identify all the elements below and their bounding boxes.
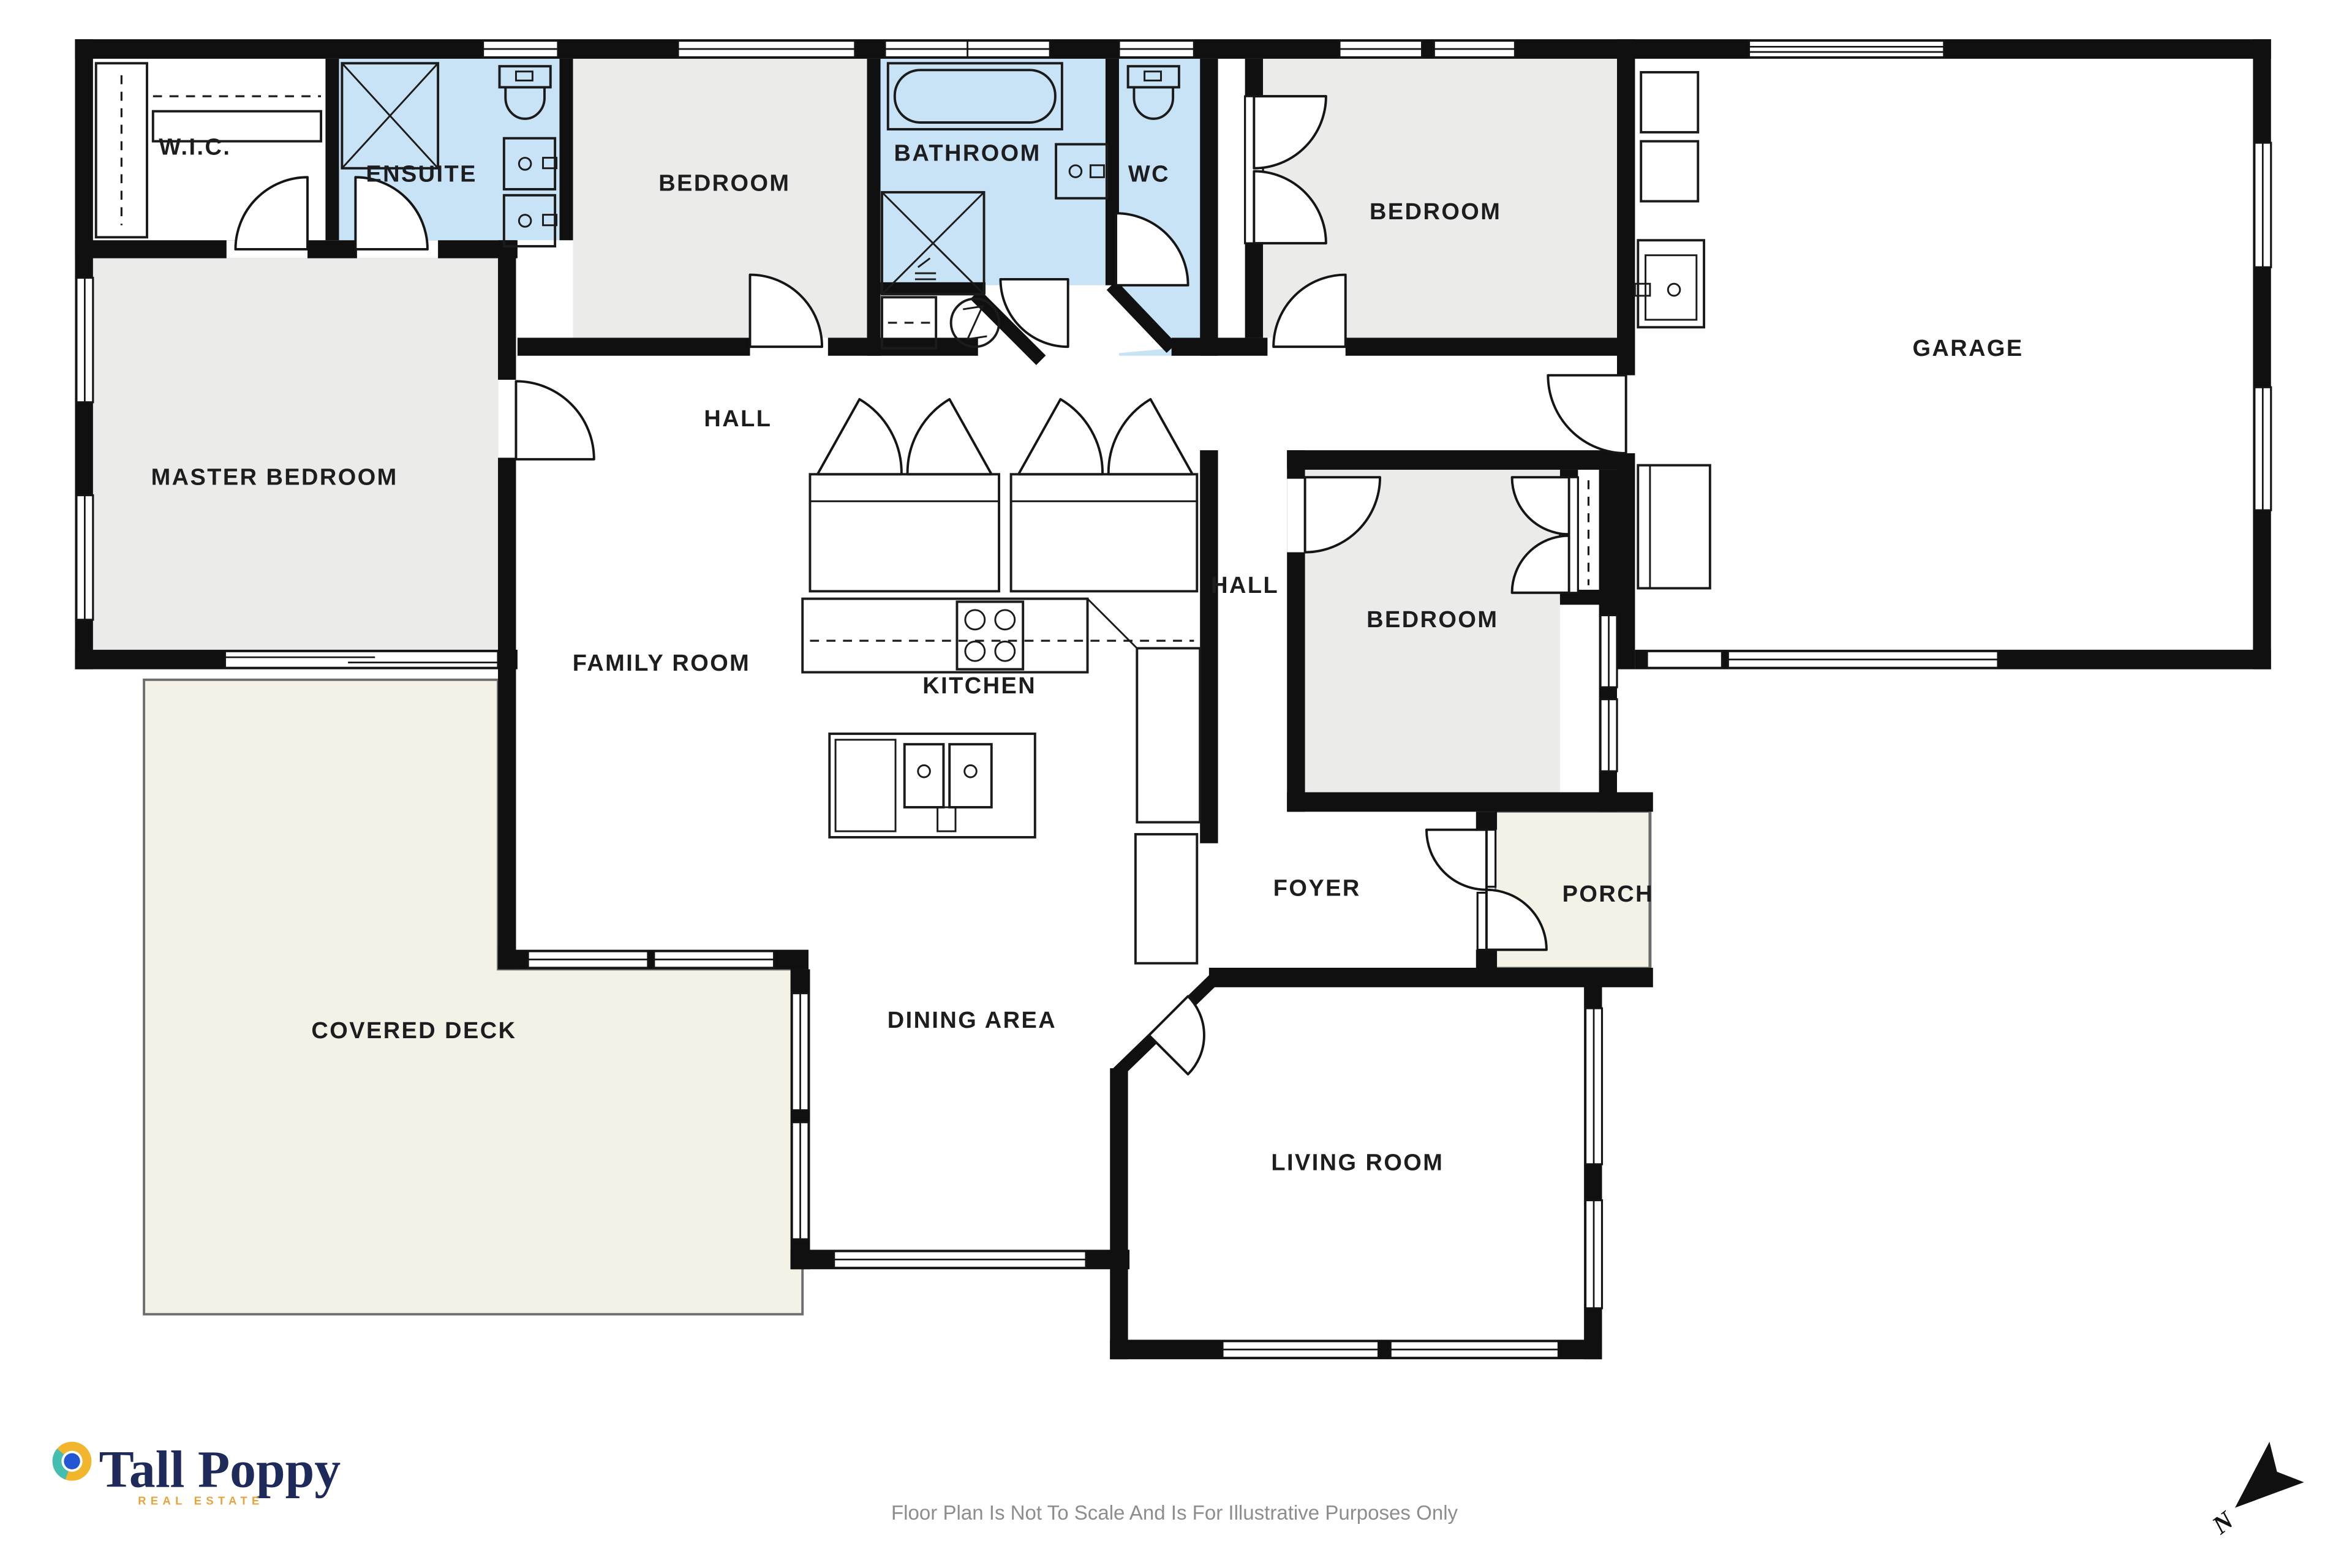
label-hall-east: HALL [1211, 573, 1279, 598]
laundry-sink [1635, 240, 1704, 327]
logo-name: Tall Poppy [99, 1440, 341, 1498]
opening-master [498, 380, 516, 458]
wall-hall-north-4 [1346, 337, 1617, 355]
floor-plan-page: W.I.C. ENSUITE BEDROOM BATHROOM WC BEDRO… [0, 0, 2352, 1568]
label-wic: W.I.C. [159, 135, 231, 160]
slider-family-deck-2 [654, 951, 774, 968]
garage-bench [1638, 466, 1710, 589]
wall-nook-top [881, 282, 986, 295]
slider-master-deck [225, 651, 498, 668]
covered-deck-floor [144, 680, 802, 1314]
label-bedroom-top: BEDROOM [658, 170, 790, 196]
label-porch: PORCH [1562, 881, 1654, 907]
window-wc [1119, 41, 1194, 58]
window-living-south-2 [1390, 1341, 1558, 1358]
wall-bedroom-bathroom [867, 59, 881, 356]
wall-garage-west-upper [1617, 39, 1635, 375]
door-garage-entry [1548, 375, 1626, 453]
window-ensuite [483, 41, 558, 58]
garage-door [1749, 41, 1944, 58]
logo-center-dot [64, 1453, 80, 1469]
label-wc: WC [1128, 162, 1170, 187]
logo-tagline: REAL ESTATE [138, 1494, 263, 1507]
window-bathroom [885, 41, 1050, 58]
label-bedroom-middle: BEDROOM [1366, 607, 1498, 633]
wall-garage-west-lower [1617, 453, 1635, 669]
slider-dining-deck-1 [792, 993, 809, 1110]
wall-living-west [1110, 1068, 1128, 1359]
wall-frontdoor-stub-bottom [1476, 950, 1497, 968]
north-arrow-icon [2235, 1442, 2304, 1508]
north-arrow: N [2207, 1442, 2304, 1540]
slider-dining-deck-2 [792, 1122, 809, 1239]
bedroom-top-floor [573, 59, 867, 338]
label-bathroom: BATHROOM [894, 140, 1041, 166]
island-tap [938, 807, 956, 831]
wall-bedroom-middle-south [1287, 792, 1653, 812]
north-label: N [2207, 1506, 2240, 1540]
label-living-room: LIVING ROOM [1271, 1150, 1444, 1176]
logo: Tall Poppy REAL ESTATE [53, 1440, 341, 1507]
label-hall-north: HALL [704, 406, 772, 432]
slider-family-deck-1 [528, 951, 648, 968]
wall-ensuite-bedroom [559, 59, 573, 240]
front-door-swing-foyer [1427, 830, 1487, 890]
wall-hall-north-3 [1172, 337, 1268, 355]
window-living-south-1 [1223, 1341, 1379, 1358]
washer [1641, 72, 1698, 132]
window-master-1 [77, 277, 93, 402]
label-covered-deck: COVERED DECK [311, 1018, 516, 1044]
closet-door-2b [1109, 399, 1193, 474]
kitchen-island [829, 734, 1035, 837]
wall-hall-north-1 [518, 337, 750, 355]
label-bedroom-right: BEDROOM [1370, 199, 1501, 225]
wall-wc-east [1200, 59, 1218, 356]
wall-frontdoor-stub-top [1476, 812, 1497, 829]
label-ensuite: ENSUITE [366, 162, 477, 187]
wall-bedroom-middle-north [1287, 450, 1617, 470]
wall-garage-east [2253, 39, 2271, 669]
window-garage-east-2 [2255, 387, 2271, 510]
window-dining-south [834, 1251, 1086, 1268]
window-bedroom-right-1 [1340, 41, 1422, 58]
wall-hall-north-2 [828, 337, 978, 355]
kitchen-counter [802, 599, 1200, 823]
hall-closet-2 [1011, 474, 1197, 591]
label-master-bedroom: MASTER BEDROOM [151, 464, 398, 490]
hall-closet-1 [810, 474, 999, 591]
window-bedroom-right-2 [1434, 41, 1515, 58]
window-bedroom-top [678, 41, 855, 58]
window-living-east-2 [1586, 1200, 1602, 1308]
cooktop [957, 601, 1023, 669]
closet-door-2a [1019, 399, 1102, 474]
dryer [1641, 141, 1698, 202]
window-master-2 [77, 496, 93, 620]
wall-wic-ensuite [325, 59, 339, 240]
bathroom-floor [881, 59, 1106, 285]
label-family-room: FAMILY ROOM [573, 650, 750, 676]
door-living-room [1149, 997, 1204, 1074]
door-wic [235, 177, 307, 249]
label-foyer: FOYER [1273, 875, 1361, 901]
window-living-east-1 [1586, 1008, 1602, 1164]
closet-door-1a [818, 399, 902, 474]
master-bedroom-floor [93, 258, 498, 650]
label-dining-area: DINING AREA [888, 1008, 1057, 1033]
window-bedroom-middle-2 [1600, 699, 1617, 772]
window-garage-east-1 [2255, 143, 2271, 267]
window-garage-south [1728, 651, 1998, 668]
window-bedroom-middle-1 [1600, 615, 1617, 687]
closet-door-1b [908, 399, 992, 474]
garage-side-door [1647, 651, 1722, 668]
door-master [516, 381, 594, 459]
label-kitchen: KITCHEN [922, 673, 1036, 699]
label-garage: GARAGE [1912, 336, 2023, 361]
kitchen-tall-cabinet [1136, 834, 1197, 963]
wall-kitchen-hall [1200, 450, 1218, 843]
footer-disclaimer: Floor Plan Is Not To Scale And Is For Il… [891, 1502, 1458, 1525]
wall-family-west [498, 240, 516, 969]
floor-plan-svg: W.I.C. ENSUITE BEDROOM BATHROOM WC BEDRO… [0, 0, 2352, 1568]
opening-bedroom-middle [1287, 479, 1305, 552]
